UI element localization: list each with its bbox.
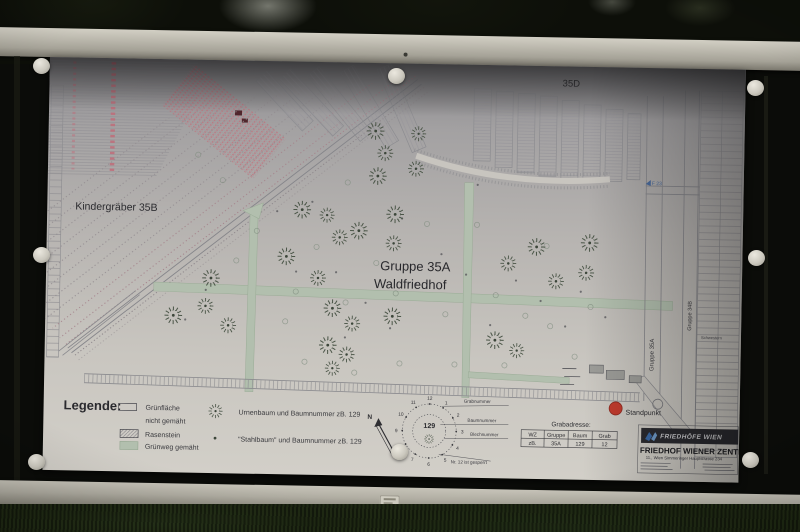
legend-tree-icon xyxy=(208,404,222,418)
dot-mark xyxy=(580,291,582,293)
clock-number: 6 xyxy=(427,462,430,468)
legend-dot-icon xyxy=(214,437,217,440)
magnet xyxy=(388,68,405,84)
frame-inner-edge xyxy=(14,56,20,480)
tree-symbol xyxy=(383,307,401,325)
tree-symbol xyxy=(528,238,546,256)
legend-rect-green-icon xyxy=(120,441,138,449)
clock-number: 4 xyxy=(456,446,459,452)
table-cell: zB. xyxy=(528,441,537,447)
ring-mark xyxy=(502,363,507,368)
tree-symbol xyxy=(320,207,335,222)
ring-mark xyxy=(397,361,402,366)
ring-mark xyxy=(314,244,319,249)
dot-mark xyxy=(344,336,346,338)
diagram-note: Nr. 12 ist gesperrt xyxy=(451,459,488,465)
ring-mark xyxy=(374,260,379,265)
dot-mark xyxy=(515,279,517,281)
legend: Legende: Grünfläche nicht gemäht Rasenst… xyxy=(63,397,363,454)
paper-right-shadow xyxy=(582,67,746,483)
label-gruppe-35a: Gruppe 35A xyxy=(380,258,451,274)
screw-icon xyxy=(404,53,408,57)
tree-symbol xyxy=(548,273,564,289)
ring-mark xyxy=(283,319,288,324)
tree-symbol xyxy=(332,229,348,245)
legend-rect-hatched-icon xyxy=(120,429,138,437)
tree-symbol xyxy=(509,343,524,358)
clock-dot xyxy=(401,430,403,432)
tree-symbol xyxy=(164,306,182,324)
ring-mark xyxy=(424,221,429,226)
label-kindergraeber: Kindergräber 35B xyxy=(75,200,158,214)
dot-mark xyxy=(477,184,479,186)
legend-title: Legende: xyxy=(63,397,121,413)
ring-mark xyxy=(343,300,348,305)
map-paper: 35D Kindergräber 35B Gruppe 35A Waldfrie… xyxy=(42,57,745,483)
dot-mark xyxy=(311,201,313,203)
dot-mark xyxy=(295,270,297,272)
dot-mark xyxy=(389,327,391,329)
clock-dot xyxy=(429,403,431,405)
callout-baumnummer: Baumnummer xyxy=(467,418,496,424)
clock-number: 7 xyxy=(411,457,414,463)
magnet xyxy=(33,247,50,263)
diagram-tree-number: 129 xyxy=(423,423,435,430)
clock-number: 9 xyxy=(395,428,398,434)
dot-mark xyxy=(184,318,186,320)
dot-mark xyxy=(276,210,278,212)
tree-symbol xyxy=(486,331,504,349)
ring-mark xyxy=(544,243,549,248)
legend-label: Urnenbaum und Baumnummer zB. 129 xyxy=(238,410,360,419)
callout-blechnummer: Blechnummer xyxy=(470,432,499,438)
frame-inner-edge xyxy=(764,76,768,474)
clock-number: 11 xyxy=(411,400,416,406)
compass-n-label: N xyxy=(367,414,372,421)
tree-symbol xyxy=(339,346,355,362)
clock-dot xyxy=(415,406,417,408)
ring-mark xyxy=(474,222,479,227)
dot-mark xyxy=(364,302,366,304)
clock-dot xyxy=(428,457,430,459)
ring-mark xyxy=(548,324,553,329)
tree-symbol xyxy=(293,201,311,219)
photo-scene: 35D Kindergräber 35B Gruppe 35A Waldfrie… xyxy=(0,0,800,532)
clock-number: 2 xyxy=(457,413,460,419)
tree-symbol xyxy=(220,317,236,333)
ring-mark xyxy=(302,359,307,364)
ring-mark xyxy=(523,313,528,318)
clock-number: 10 xyxy=(398,412,404,418)
magnet xyxy=(28,454,45,470)
tree-numbering-diagram: 129 Grabnummer Baumnummer Blechnummer Nr… xyxy=(394,395,509,469)
tree-symbol xyxy=(350,222,368,240)
legend-label: Grünweg gemäht xyxy=(145,444,199,452)
diagram-tree-icon xyxy=(424,434,434,444)
tree-symbol xyxy=(323,299,341,317)
tree-symbol xyxy=(500,255,516,271)
tree-symbol xyxy=(369,167,387,185)
magnet xyxy=(748,250,765,266)
tree-symbol xyxy=(310,270,326,286)
ring-mark xyxy=(572,354,577,359)
tree-symbol xyxy=(377,145,393,161)
tree-symbol xyxy=(344,316,360,332)
magnet xyxy=(33,58,50,74)
table-cell: 35A xyxy=(551,441,561,447)
magnet xyxy=(742,452,759,468)
tree-symbol xyxy=(197,298,213,314)
tree-symbol xyxy=(325,361,340,376)
ring-mark xyxy=(345,180,350,185)
col-header: Gruppe xyxy=(547,433,565,439)
label-waldfriedhof: Waldfriedhof xyxy=(374,276,447,292)
clock-dot xyxy=(455,431,457,433)
ring-mark xyxy=(352,370,357,375)
legend-label: "Stahlbaum" und Baumnummer zB. 129 xyxy=(238,437,362,446)
tree-symbol xyxy=(386,205,404,223)
tree-symbol xyxy=(319,336,337,354)
magnet xyxy=(747,80,764,96)
legend-label: Rasenstein xyxy=(145,432,180,440)
dot-mark xyxy=(564,325,566,327)
cemetery-map: 35D Kindergräber 35B Gruppe 35A Waldfrie… xyxy=(42,57,745,483)
legend-label: nicht gemäht xyxy=(145,418,185,426)
tree-symbol xyxy=(386,235,402,251)
background-grass xyxy=(0,504,800,532)
callout-grabnummer: Grabnummer xyxy=(464,399,492,405)
clock-number: 12 xyxy=(427,396,433,402)
ring-mark xyxy=(234,258,239,263)
clock-number: 5 xyxy=(444,458,447,464)
ring-mark xyxy=(443,312,448,317)
legend-label: Grünfläche xyxy=(146,405,180,413)
dot-mark xyxy=(489,324,491,326)
magnet xyxy=(391,444,408,460)
ring-mark xyxy=(452,362,457,367)
dot-mark xyxy=(440,253,442,255)
dot-mark xyxy=(335,271,337,273)
tree-symbol xyxy=(277,247,295,265)
col-header: WZ xyxy=(528,432,537,438)
clock-number: 1 xyxy=(445,401,448,407)
clock-number: 3 xyxy=(461,429,464,435)
